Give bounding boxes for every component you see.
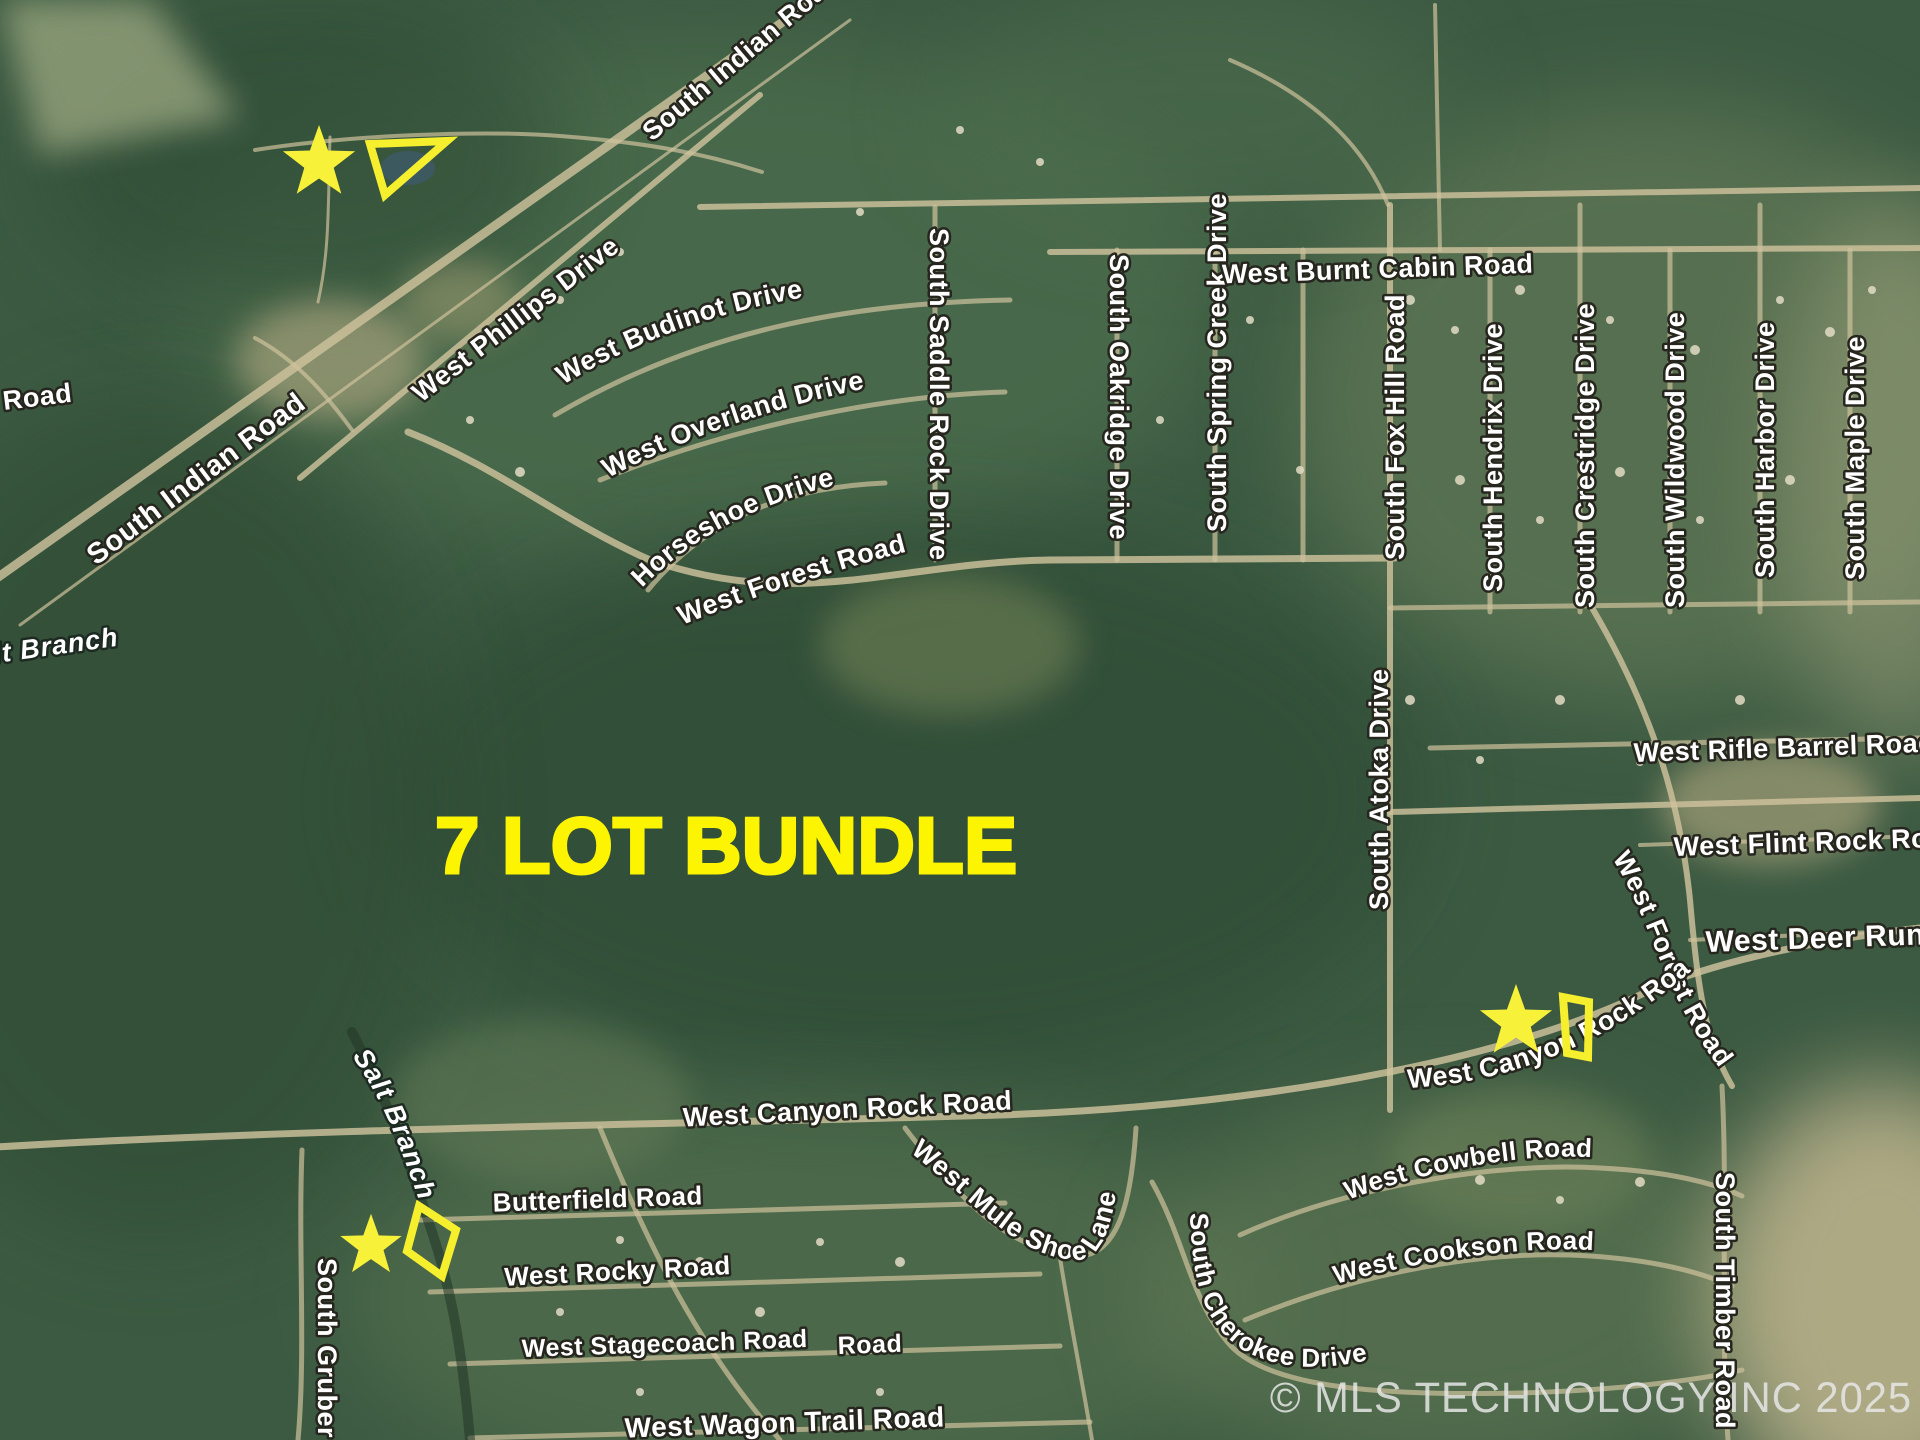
road-label-south-hendrix-drive: South Hendrix Drive [1478, 323, 1508, 592]
road-label-south-gruber-drive: South Gruber Drive [312, 1258, 342, 1440]
road-label-south-saddle-rock-drive: South Saddle Rock Drive [924, 228, 954, 561]
road-label-partial-road-stagecoach-row: Road [837, 1330, 902, 1360]
road-label-south-wildwood-drive: South Wildwood Drive [1660, 312, 1690, 608]
map-canvas: South Indian Road South Indian Road Road… [0, 0, 1920, 1440]
road-label-south-harbor-drive: South Harbor Drive [1750, 321, 1780, 578]
road-label-south-fox-hill-road: South Fox Hill Road [1380, 294, 1410, 560]
listing-title-overlay: 7 LOT BUNDLE [435, 800, 1017, 892]
mls-watermark: © MLS TECHNOLOGY INC 2025 [1270, 1374, 1912, 1423]
road-label-south-crestridge-drive: South Crestridge Drive [1570, 303, 1600, 608]
road-label-south-atoka-drive: South Atoka Drive [1364, 668, 1394, 910]
road-label-south-maple-drive: South Maple Drive [1840, 336, 1870, 580]
road-label-south-oakridge-drive: South Oakridge Drive [1104, 254, 1134, 540]
road-label-south-spring-creek-drive: South Spring Creek Drive [1202, 193, 1232, 532]
aerial-map: South Indian Road South Indian Road Road… [0, 0, 1920, 1440]
